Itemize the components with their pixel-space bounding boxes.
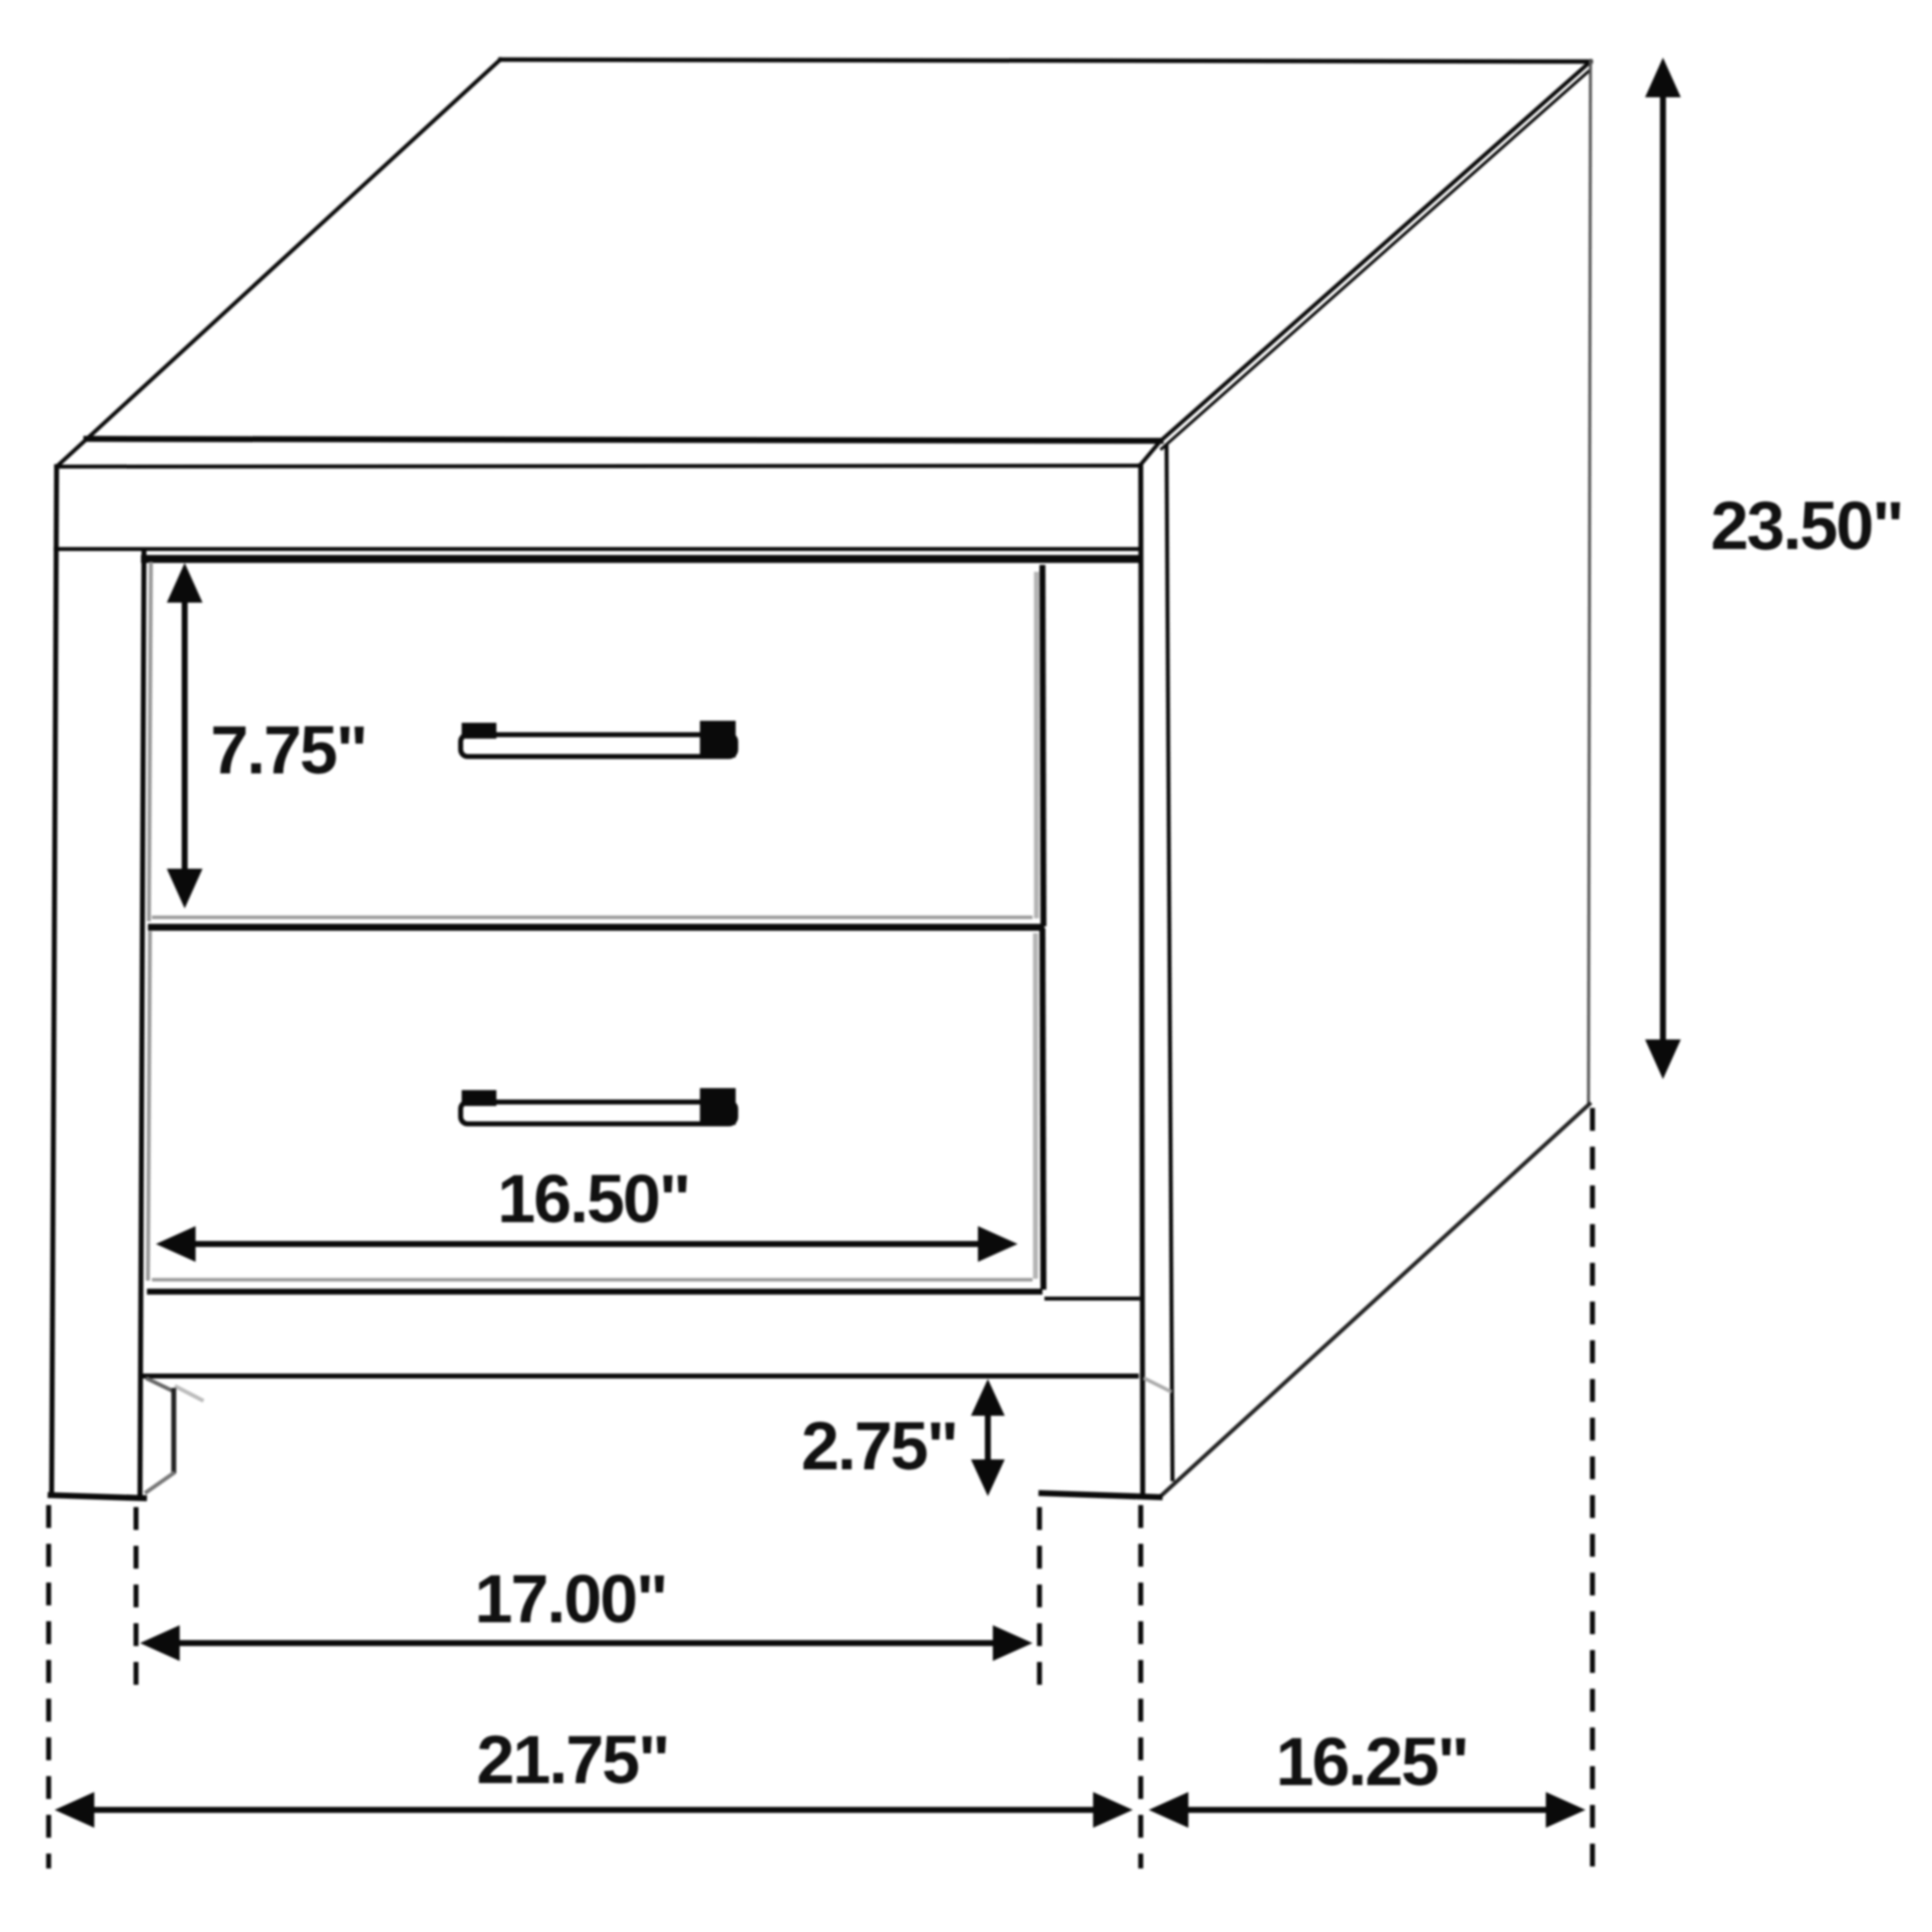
svg-text:23.50": 23.50" xyxy=(1711,487,1902,564)
svg-text:21.75": 21.75" xyxy=(477,1722,668,1798)
svg-text:16.25": 16.25" xyxy=(1276,1724,1467,1800)
svg-text:17.00": 17.00" xyxy=(475,1561,666,1637)
svg-text:2.75": 2.75" xyxy=(801,1408,957,1484)
svg-text:7.75": 7.75" xyxy=(210,712,366,788)
svg-text:16.50": 16.50" xyxy=(497,1161,689,1237)
